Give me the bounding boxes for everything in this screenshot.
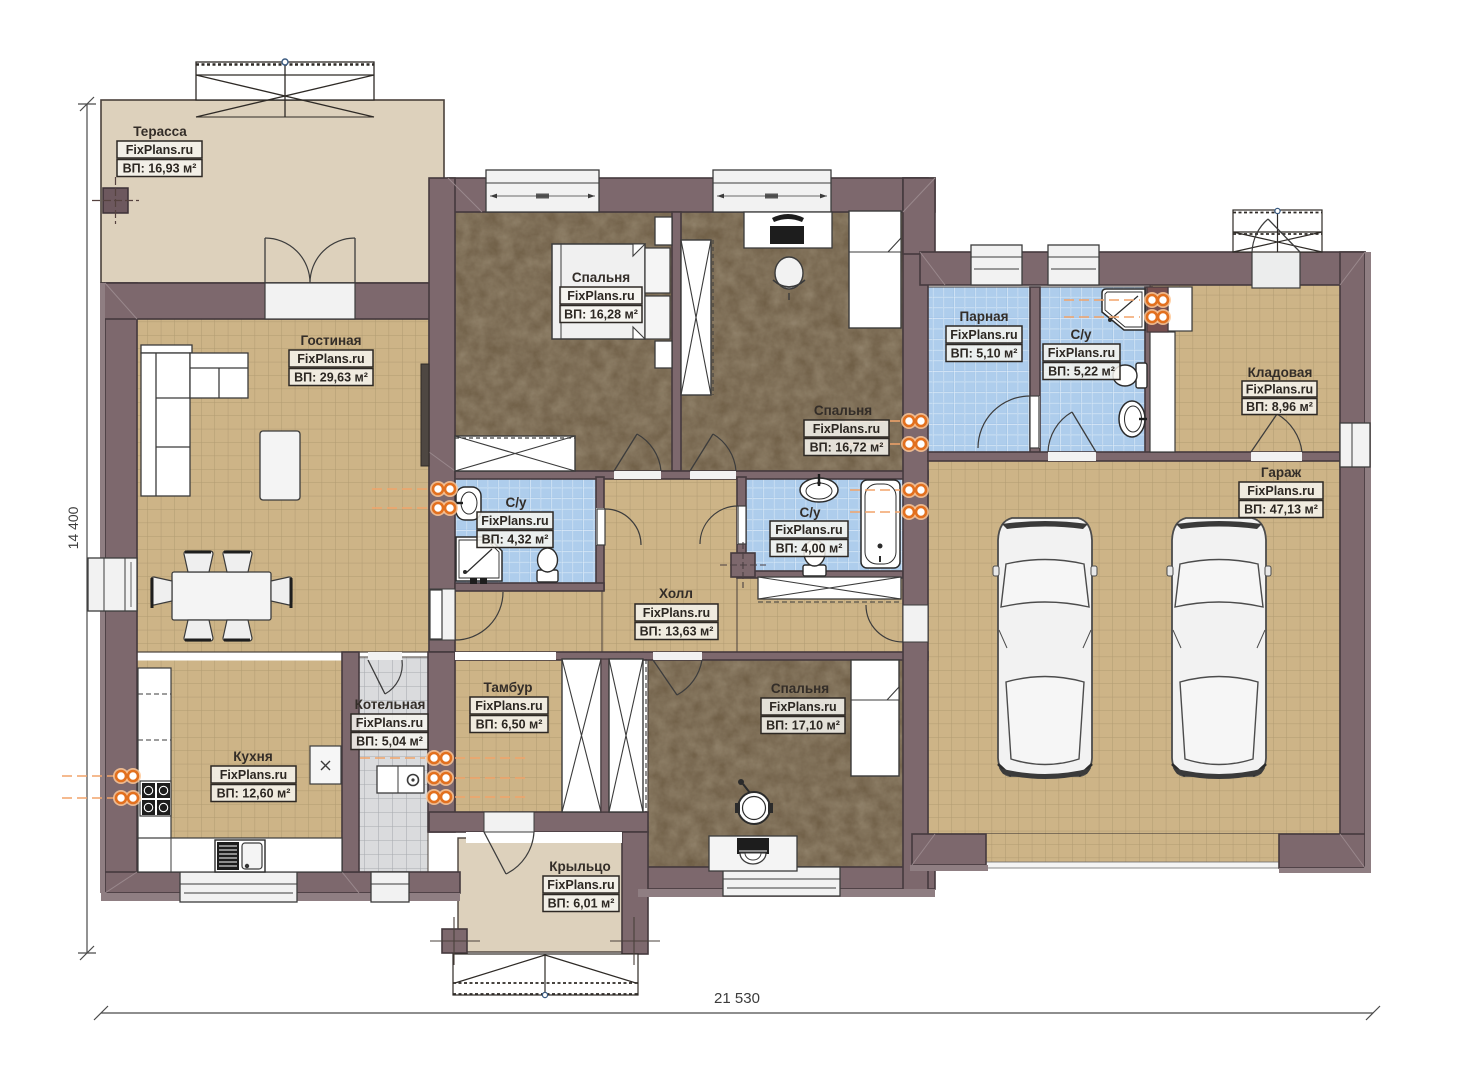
- svg-text:FixPlans.ru: FixPlans.ru: [769, 700, 836, 714]
- svg-text:21 530: 21 530: [714, 990, 760, 1007]
- svg-text:FixPlans.ru: FixPlans.ru: [547, 878, 614, 892]
- svg-text:ВП: 13,63 м²: ВП: 13,63 м²: [640, 625, 714, 639]
- svg-text:FixPlans.ru: FixPlans.ru: [475, 699, 542, 713]
- svg-text:Кухня: Кухня: [233, 749, 272, 764]
- svg-text:Спальня: Спальня: [572, 270, 630, 285]
- svg-text:Тамбур: Тамбур: [484, 680, 533, 695]
- svg-text:FixPlans.ru: FixPlans.ru: [220, 768, 287, 782]
- svg-text:Холл: Холл: [659, 586, 693, 601]
- svg-text:ВП: 6,50 м²: ВП: 6,50 м²: [476, 718, 543, 732]
- svg-text:ВП: 5,04 м²: ВП: 5,04 м²: [356, 735, 423, 749]
- svg-text:С/у: С/у: [1070, 327, 1092, 342]
- svg-text:FixPlans.ru: FixPlans.ru: [775, 523, 842, 537]
- svg-text:Спальня: Спальня: [814, 403, 872, 418]
- svg-text:Крыльцо: Крыльцо: [549, 859, 610, 874]
- svg-text:ВП: 17,10 м²: ВП: 17,10 м²: [766, 719, 840, 733]
- svg-text:Гараж: Гараж: [1261, 465, 1302, 480]
- svg-text:ВП: 5,22 м²: ВП: 5,22 м²: [1048, 365, 1115, 379]
- svg-text:ВП: 16,28 м²: ВП: 16,28 м²: [564, 308, 638, 322]
- svg-text:FixPlans.ru: FixPlans.ru: [1247, 484, 1314, 498]
- svg-text:FixPlans.ru: FixPlans.ru: [813, 422, 880, 436]
- svg-text:FixPlans.ru: FixPlans.ru: [481, 514, 548, 528]
- svg-text:ВП: 47,13 м²: ВП: 47,13 м²: [1244, 503, 1318, 517]
- svg-text:FixPlans.ru: FixPlans.ru: [643, 606, 710, 620]
- svg-text:Котельная: Котельная: [355, 697, 426, 712]
- svg-text:С/у: С/у: [505, 495, 527, 510]
- svg-text:FixPlans.ru: FixPlans.ru: [950, 328, 1017, 342]
- svg-text:FixPlans.ru: FixPlans.ru: [356, 716, 423, 730]
- svg-text:FixPlans.ru: FixPlans.ru: [126, 143, 193, 157]
- svg-text:FixPlans.ru: FixPlans.ru: [1246, 383, 1313, 397]
- svg-text:14 400: 14 400: [65, 506, 81, 549]
- svg-text:Парная: Парная: [960, 309, 1009, 324]
- svg-text:ВП: 16,93 м²: ВП: 16,93 м²: [123, 162, 197, 176]
- svg-text:С/у: С/у: [799, 505, 821, 520]
- svg-text:ВП: 12,60 м²: ВП: 12,60 м²: [217, 787, 291, 801]
- svg-text:Гостиная: Гостиная: [300, 333, 361, 348]
- svg-text:ВП: 6,01 м²: ВП: 6,01 м²: [548, 897, 615, 911]
- svg-text:ВП: 4,00 м²: ВП: 4,00 м²: [776, 542, 843, 556]
- svg-text:FixPlans.ru: FixPlans.ru: [297, 352, 364, 366]
- svg-text:ВП: 16,72 м²: ВП: 16,72 м²: [810, 441, 884, 455]
- svg-text:Кладовая: Кладовая: [1248, 365, 1313, 380]
- svg-text:FixPlans.ru: FixPlans.ru: [567, 289, 634, 303]
- svg-text:FixPlans.ru: FixPlans.ru: [1048, 346, 1115, 360]
- svg-text:ВП: 8,96 м²: ВП: 8,96 м²: [1246, 400, 1313, 414]
- svg-text:ВП: 4,32 м²: ВП: 4,32 м²: [482, 533, 549, 547]
- svg-text:Терасса: Терасса: [133, 124, 187, 139]
- svg-text:ВП: 5,10 м²: ВП: 5,10 м²: [951, 347, 1018, 361]
- svg-text:Спальня: Спальня: [771, 681, 829, 696]
- svg-text:ВП: 29,63 м²: ВП: 29,63 м²: [294, 371, 368, 385]
